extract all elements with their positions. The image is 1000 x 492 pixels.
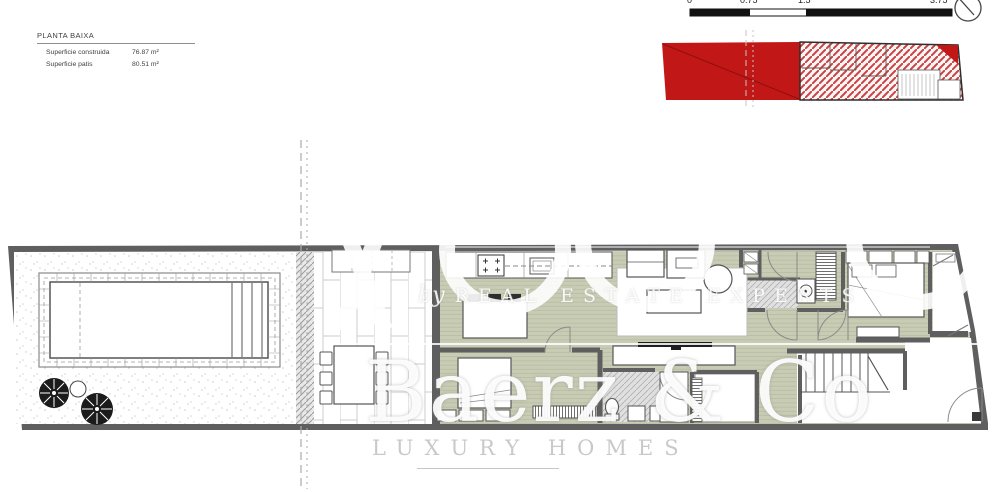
area-label: Superficie patis xyxy=(46,61,132,68)
dining-table xyxy=(320,346,388,404)
area-label: Superficie construida xyxy=(46,49,132,56)
plan-title: PLANTA BAIXA xyxy=(37,31,247,40)
terrace-interior-wall xyxy=(432,250,440,425)
area-value: 80.51 m² xyxy=(132,61,159,68)
louver-screen xyxy=(692,378,702,422)
floor-plan-drawing xyxy=(0,0,1000,492)
key-plan xyxy=(662,30,963,108)
planter-icon xyxy=(70,381,86,397)
laundry-tile-floor xyxy=(744,280,798,308)
sink-icon xyxy=(628,406,645,421)
area-row: Superficie construida 76.87 m² xyxy=(37,49,247,56)
title-block: PLANTA BAIXA Superficie construida 76.87… xyxy=(37,31,247,68)
nightstand xyxy=(437,410,456,421)
bed-1 xyxy=(458,358,511,408)
swimming-pool xyxy=(39,273,280,367)
closet-hangers xyxy=(533,406,597,418)
scale-tick: 1.5 xyxy=(798,0,811,5)
scale-bar xyxy=(690,9,952,16)
area-value: 76.87 m² xyxy=(132,49,159,56)
bench xyxy=(857,327,899,337)
floor-plan-page: PLANTA BAIXA Superficie construida 76.87… xyxy=(0,0,1000,492)
toilet-icon xyxy=(606,399,619,416)
tree-icon xyxy=(81,393,113,425)
inner-patio-floor xyxy=(695,374,755,422)
entry xyxy=(972,412,982,421)
title-underline xyxy=(37,43,195,44)
scale-tick: 0.75 xyxy=(740,0,758,5)
patio-deck-wall xyxy=(296,252,314,424)
north-compass-icon xyxy=(955,0,981,21)
cooktop-icon xyxy=(478,255,504,276)
area-row: Superficie patis 80.51 m² xyxy=(37,61,247,68)
louver-closet xyxy=(816,252,836,300)
scale-tick: 0 xyxy=(687,0,692,5)
tree-icon xyxy=(39,378,69,408)
scale-tick: 3.75 xyxy=(930,0,948,5)
